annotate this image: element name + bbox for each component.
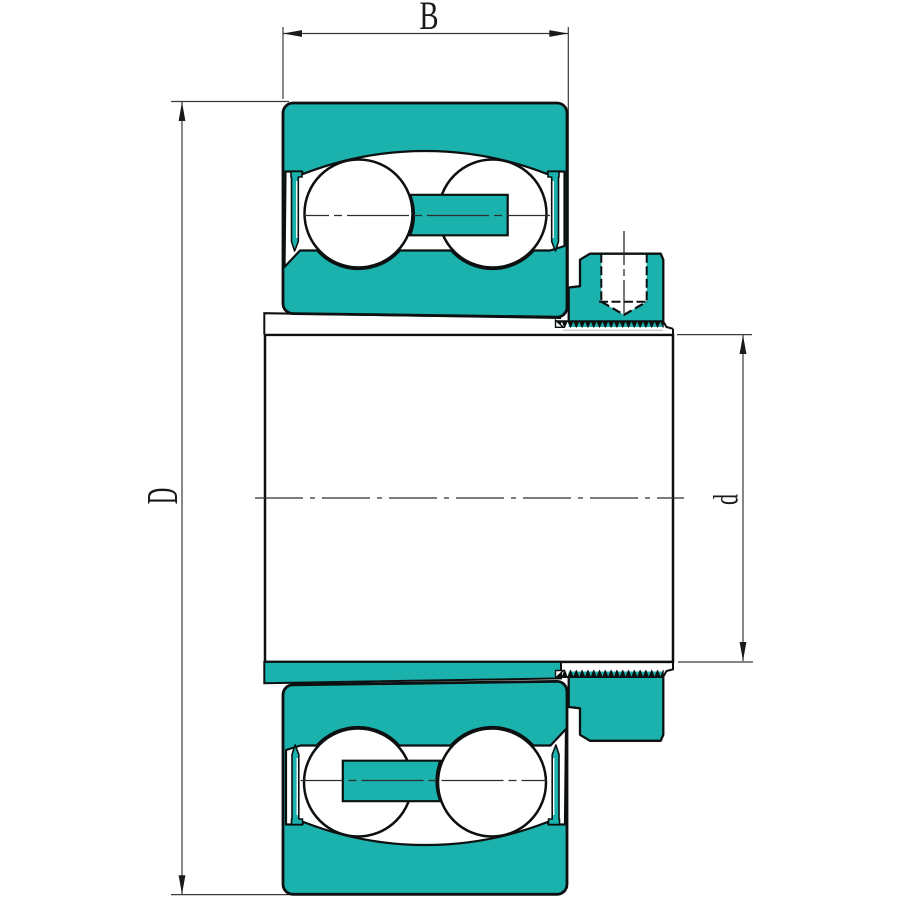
svg-text:d: d [707, 494, 745, 505]
svg-text:D: D [138, 488, 187, 505]
svg-text:B: B [419, 0, 438, 38]
